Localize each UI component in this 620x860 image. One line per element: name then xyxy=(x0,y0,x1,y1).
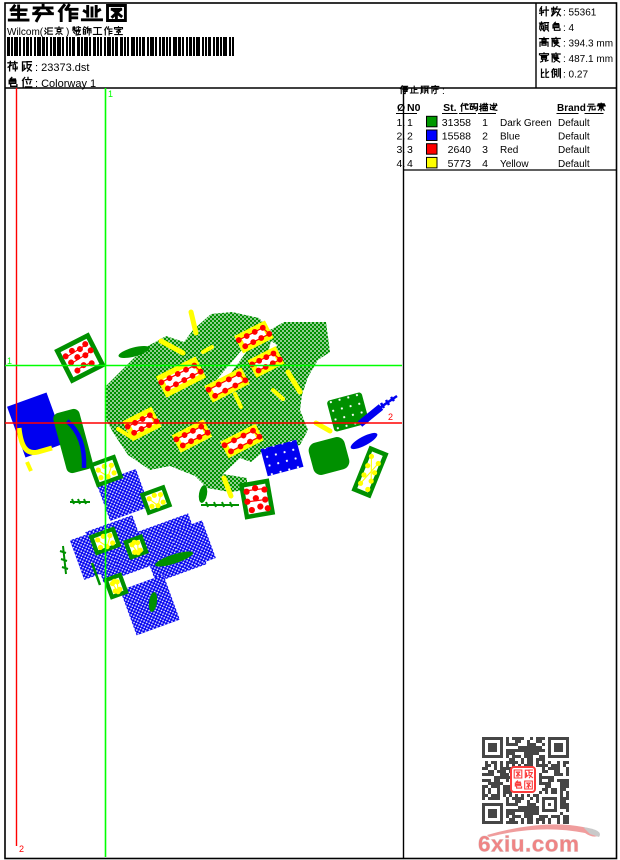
svg-text:): ) xyxy=(66,27,69,38)
svg-text:: 394.3 mm: : 394.3 mm xyxy=(563,39,613,50)
svg-text:4: 4 xyxy=(407,158,413,170)
svg-text:Default: Default xyxy=(558,118,590,129)
svg-text:N0: N0 xyxy=(407,102,421,114)
svg-text:Wilcom(: Wilcom( xyxy=(7,27,44,38)
svg-text:Default: Default xyxy=(558,132,590,143)
svg-text:: 0.27: : 0.27 xyxy=(563,70,588,81)
svg-text:1: 1 xyxy=(108,89,113,99)
svg-text:Blue: Blue xyxy=(500,132,520,143)
svg-text:6xiu.com: 6xiu.com xyxy=(478,832,580,857)
svg-text:Dark Green: Dark Green xyxy=(500,118,552,129)
svg-text:1: 1 xyxy=(407,117,413,129)
svg-text:: 23373.dst: : 23373.dst xyxy=(35,62,89,74)
svg-text:1: 1 xyxy=(482,117,488,129)
svg-text:St.: St. xyxy=(443,102,457,114)
svg-text:Yellow: Yellow xyxy=(500,159,529,170)
svg-text:2: 2 xyxy=(388,412,393,422)
svg-text:Ø: Ø xyxy=(397,102,405,114)
svg-text:5773: 5773 xyxy=(448,158,472,170)
svg-text:2: 2 xyxy=(407,131,413,143)
svg-text:: 487.1 mm: : 487.1 mm xyxy=(563,54,613,65)
svg-text:Default: Default xyxy=(558,159,590,170)
svg-text:: 55361: : 55361 xyxy=(563,8,597,19)
svg-text:1: 1 xyxy=(7,356,12,366)
svg-text:: 4: : 4 xyxy=(563,23,575,34)
svg-text:3: 3 xyxy=(482,144,488,156)
svg-text::: : xyxy=(442,86,445,97)
svg-text:: Colorway 1: : Colorway 1 xyxy=(35,78,96,90)
svg-text:2640: 2640 xyxy=(448,144,472,156)
svg-text:Brand: Brand xyxy=(557,103,586,114)
svg-text:4.: 4. xyxy=(397,158,406,170)
svg-text:15588: 15588 xyxy=(442,131,471,143)
svg-text:31358: 31358 xyxy=(442,117,471,129)
svg-text:2: 2 xyxy=(482,131,488,143)
svg-text:2.: 2. xyxy=(397,131,406,143)
svg-text:1.: 1. xyxy=(397,117,406,129)
svg-text:3.: 3. xyxy=(397,144,406,156)
svg-text:Red: Red xyxy=(500,145,518,156)
svg-text:2: 2 xyxy=(19,844,24,854)
svg-text:4: 4 xyxy=(482,158,488,170)
svg-text:3: 3 xyxy=(407,144,413,156)
svg-text:Default: Default xyxy=(558,145,590,156)
